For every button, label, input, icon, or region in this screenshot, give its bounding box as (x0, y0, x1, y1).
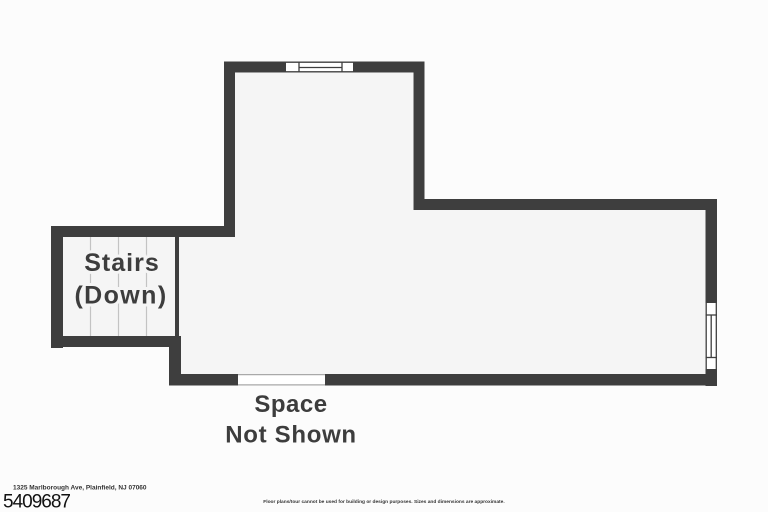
svg-text:Space: Space (254, 391, 327, 418)
svg-text:Not Shown: Not Shown (225, 422, 357, 449)
svg-text:Floor plans/tour cannot be use: Floor plans/tour cannot be used for buil… (263, 499, 505, 505)
svg-text:Stairs: Stairs (84, 249, 159, 277)
svg-text:5409687: 5409687 (3, 492, 70, 512)
svg-text:(Down): (Down) (74, 282, 167, 310)
svg-text:1325 Marlborough Ave, Plainfie: 1325 Marlborough Ave, Plainfield, NJ 070… (13, 485, 147, 492)
